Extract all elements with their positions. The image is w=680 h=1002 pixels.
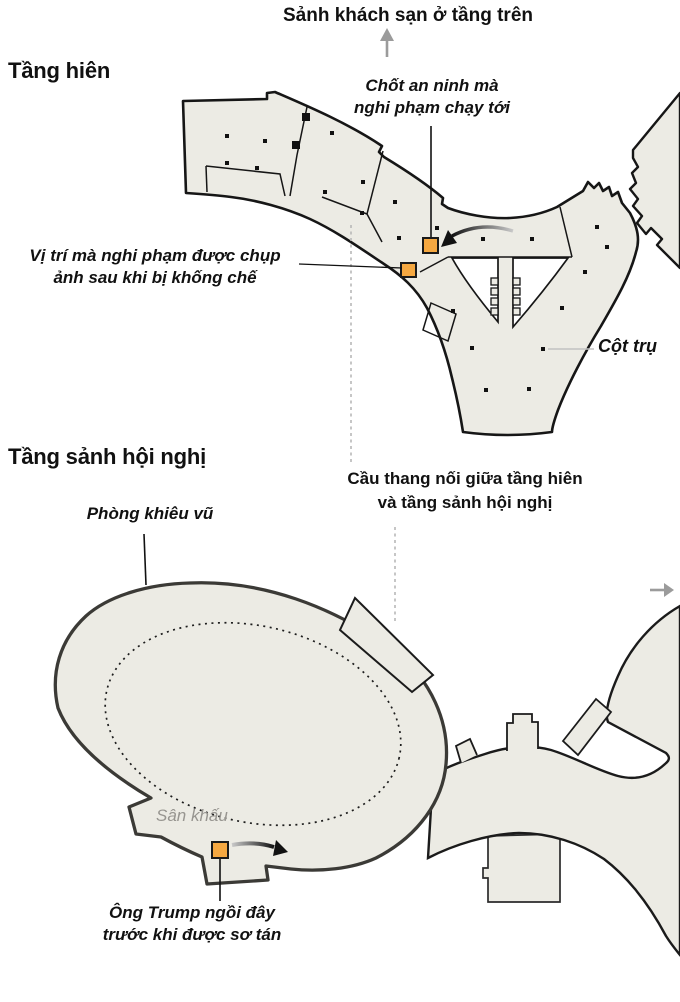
suspect-photo-label: Vị trí mà nghi phạm được chụp ảnh sau kh…	[5, 245, 305, 289]
ballroom-leader-line	[144, 534, 146, 585]
suspect-photo-marker	[401, 263, 416, 277]
trump-seat-marker	[212, 842, 228, 858]
security-post-marker	[423, 238, 438, 253]
conference-floor-title: Tầng sảnh hội nghị	[8, 444, 206, 470]
right-arrow-icon	[650, 583, 674, 597]
conference-floor-plan	[55, 527, 680, 955]
side-room-outline	[483, 834, 560, 902]
stage-label: Sân khấu	[156, 806, 228, 826]
security-post-label: Chốt an ninh mà nghi phạm chạy tới	[332, 75, 532, 119]
trump-seat-label: Ông Trump ngồi đây trước khi được sơ tán	[92, 902, 292, 946]
stairs-label: Cầu thang nối giữa tầng hiên và tầng sản…	[265, 467, 665, 515]
ballroom-label: Phòng khiêu vũ	[50, 503, 250, 525]
pillar-label: Cột trụ	[598, 336, 657, 357]
lobby-direction-label: Sảnh khách sạn ở tầng trên	[258, 5, 558, 27]
porch-floor-title: Tầng hiên	[8, 58, 110, 84]
floor-plan-infographic: Sảnh khách sạn ở tầng trên Tầng hiên Chố…	[0, 0, 680, 1002]
lobby-up-arrow-icon	[380, 28, 394, 57]
ballroom-outline	[55, 583, 446, 884]
